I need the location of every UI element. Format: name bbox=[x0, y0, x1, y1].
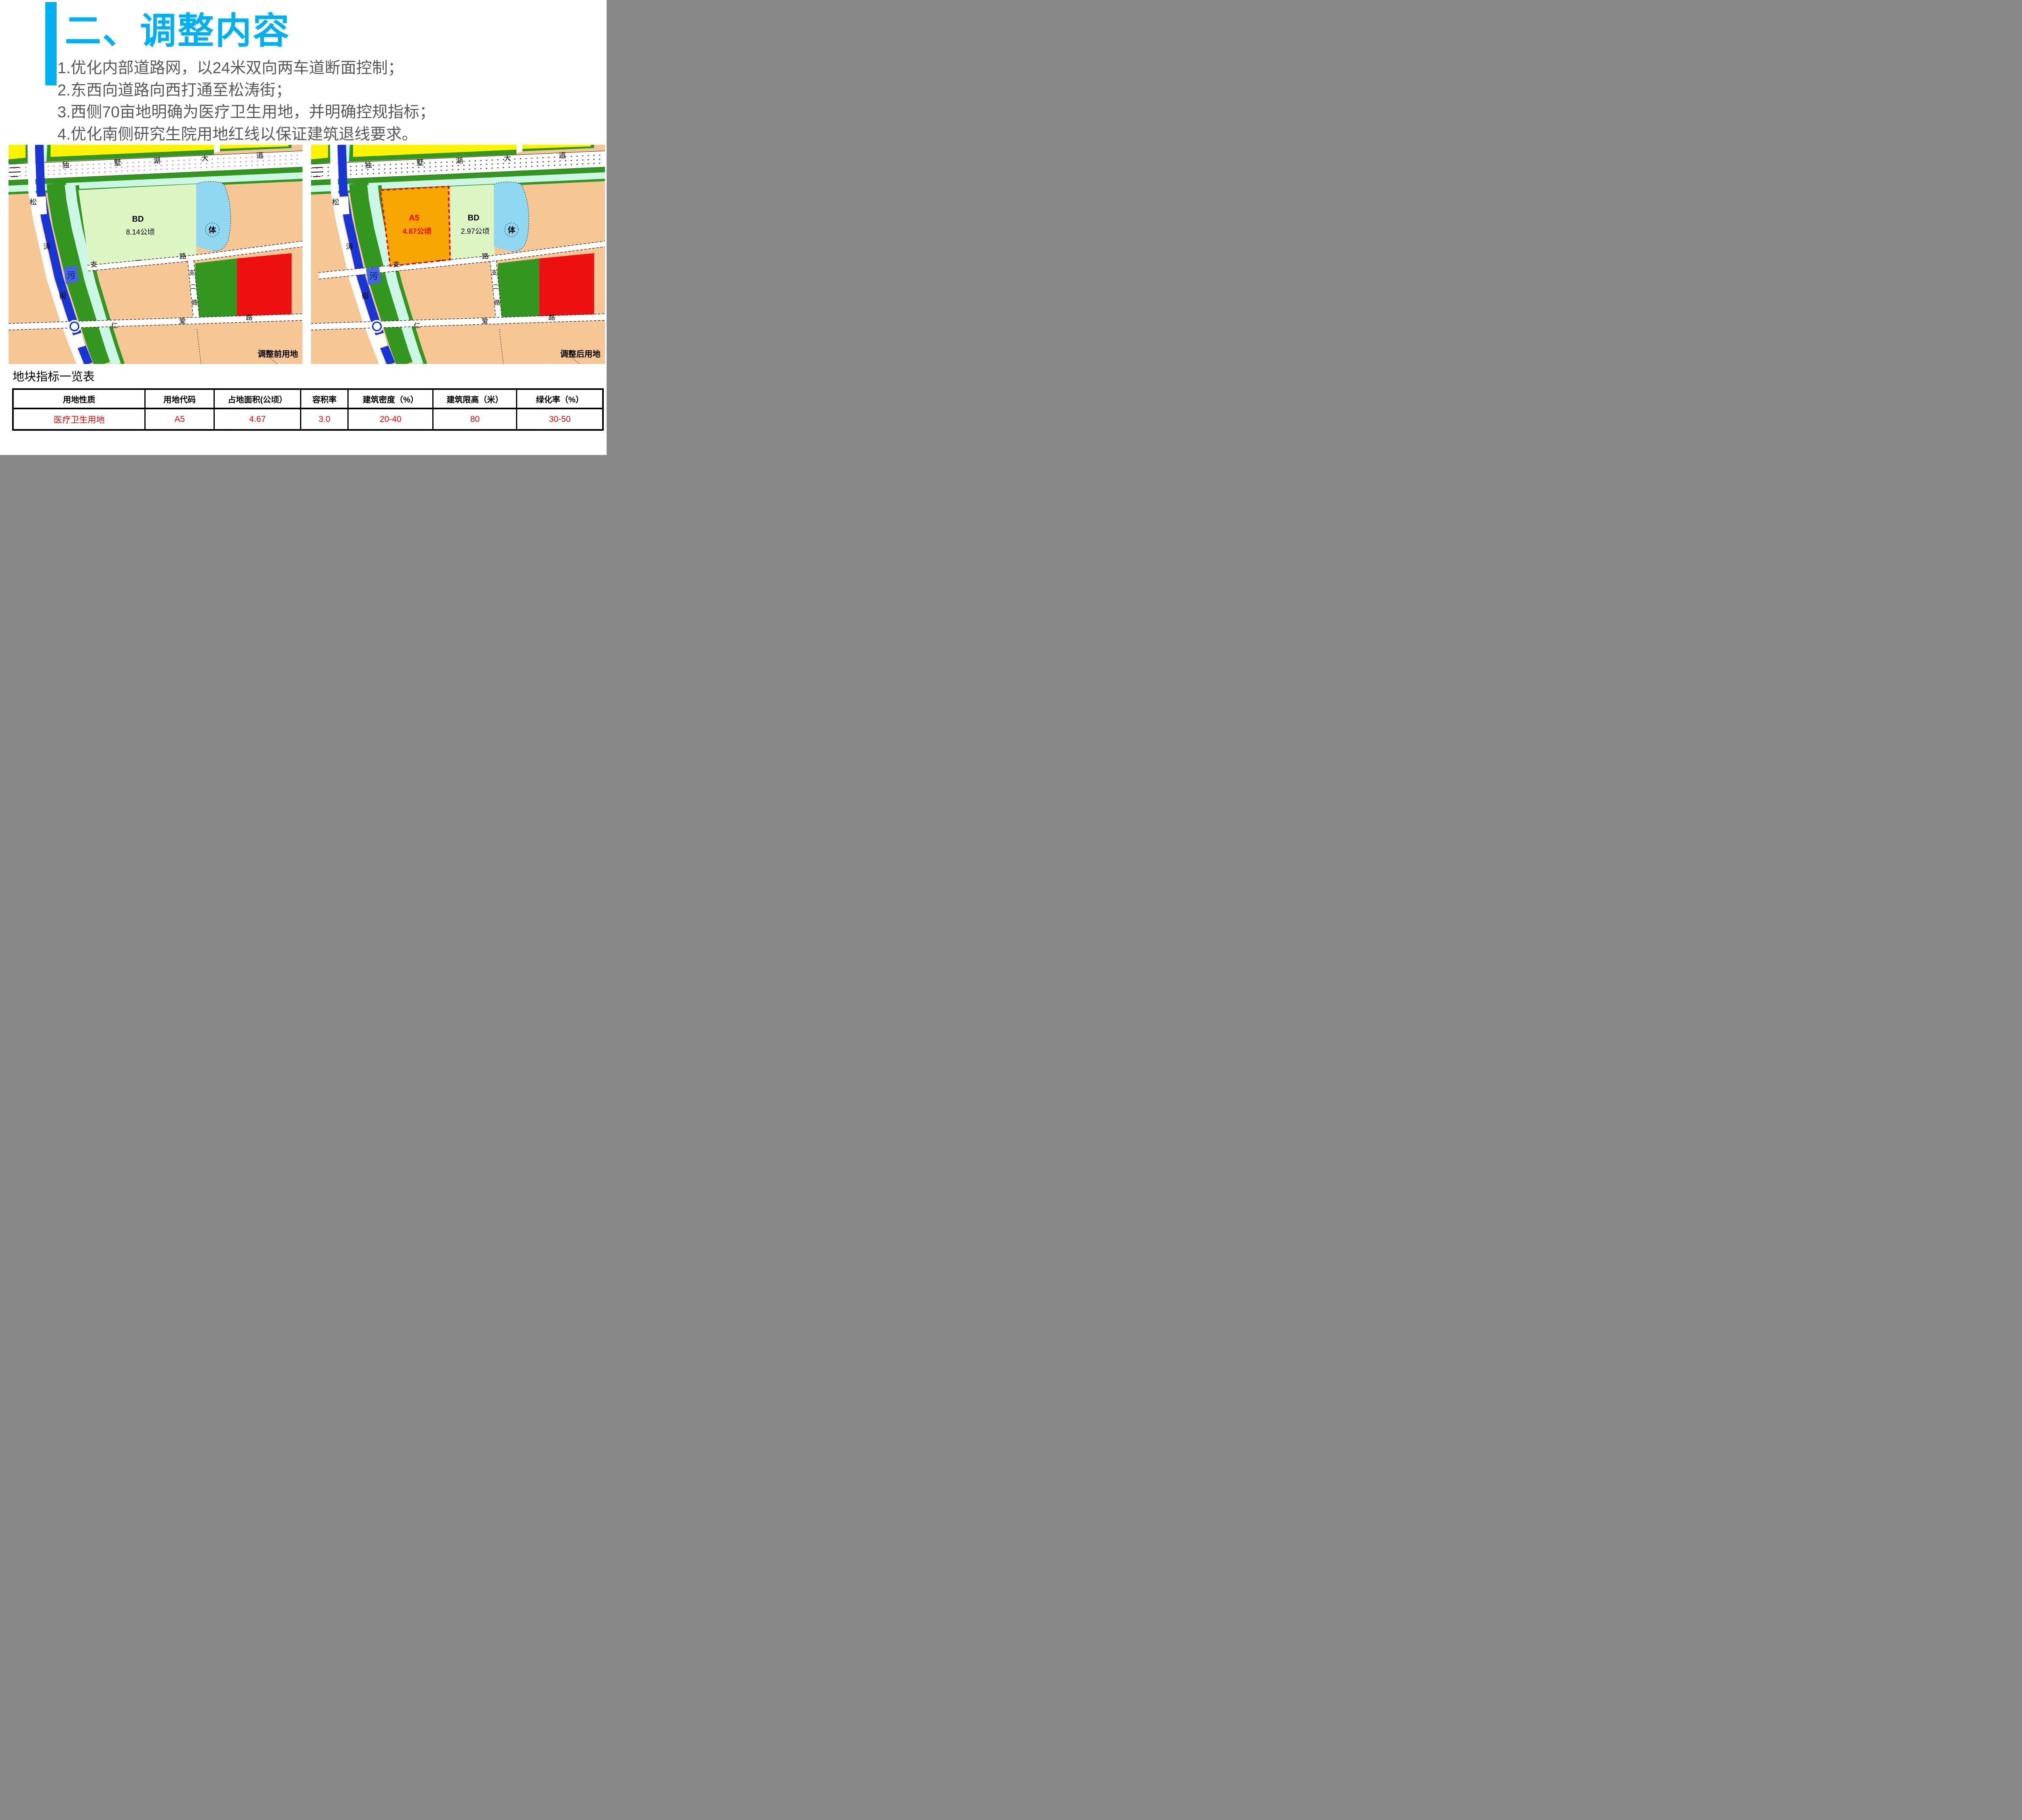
col-header-green-ratio: 绿化率（%） bbox=[517, 389, 603, 408]
pond-label: 体 bbox=[508, 225, 516, 235]
pond bbox=[494, 182, 529, 252]
road-label-renai: 仁 bbox=[413, 322, 421, 330]
table-header-row: 用地性质 用地代码 占地面积(公顷） 容积率 建筑密度（%） 建筑限高（米） 绿… bbox=[13, 389, 603, 408]
cell-far: 3.0 bbox=[301, 408, 348, 430]
parcel-label-bd-code: BD bbox=[132, 215, 144, 224]
pond bbox=[196, 182, 231, 251]
road-label-songtao: 街 bbox=[362, 292, 369, 300]
road-label-zhiyi: 一 bbox=[135, 257, 142, 265]
pond-label: 体 bbox=[208, 225, 216, 235]
parcel-park bbox=[195, 258, 237, 318]
title-accent-bar bbox=[45, 2, 57, 85]
sewage-label: 污 bbox=[67, 271, 76, 280]
road-label-renai: 爱 bbox=[481, 317, 489, 325]
road-label-renai: 仁 bbox=[111, 322, 118, 330]
road-label-dushuhu: 独 bbox=[62, 161, 70, 169]
col-header-density: 建筑密度（%） bbox=[348, 389, 433, 408]
bullet-list: 1.优化内部道路网，以24米双向两车道断面控制； 2.东西向道路向西打通至松涛街… bbox=[57, 57, 599, 146]
bullet-item: 2.东西向道路向西打通至松涛街； bbox=[57, 80, 599, 102]
map-caption-after: 调整后用地 bbox=[560, 349, 601, 359]
table-row: 医疗卫生用地 A5 4.67 3.0 20-40 80 30-50 bbox=[13, 408, 603, 430]
parcel-label-bd-area: 2.97公顷 bbox=[461, 227, 489, 235]
bullet-item: 3.西侧70亩地明确为医疗卫生用地，并明确控规指标； bbox=[57, 102, 599, 124]
page-title: 二、调整内容 bbox=[65, 11, 290, 51]
col-header-far: 容积率 bbox=[301, 389, 348, 408]
parcel-label-bd-code: BD bbox=[468, 214, 480, 222]
map-caption-before: 调整前用地 bbox=[258, 349, 298, 359]
road-label-renai: 路 bbox=[245, 313, 253, 322]
parcel-red bbox=[539, 253, 594, 317]
bullet-item: 4.优化南侧研究生院用地红线以保证建筑退线要求。 bbox=[57, 124, 599, 146]
cell-green-ratio: 30-50 bbox=[517, 408, 603, 430]
road-label-songtao: 街 bbox=[59, 292, 66, 300]
col-header-land-use: 用地性质 bbox=[13, 389, 145, 408]
cell-area: 4.67 bbox=[214, 408, 301, 430]
road-label-songtao: 松 bbox=[332, 198, 339, 206]
road-label-dushuhu: 墅 bbox=[416, 159, 424, 167]
road-label-zhier: 路 bbox=[494, 299, 500, 306]
col-header-area: 占地面积(公顷） bbox=[214, 389, 301, 408]
road-label-songtao: 涛 bbox=[346, 243, 353, 251]
cell-land-use: 医疗卫生用地 bbox=[13, 408, 145, 430]
parcel-red bbox=[237, 253, 292, 317]
parcel-yellow bbox=[311, 145, 328, 159]
road-label-dushuhu: 大 bbox=[503, 154, 511, 163]
parcel-label-a5-code: A5 bbox=[409, 214, 419, 222]
col-header-land-code: 用地代码 bbox=[145, 389, 214, 408]
road-label-zhiyi: 一 bbox=[437, 257, 444, 265]
road-label-zhier: 二 bbox=[190, 284, 196, 290]
parcel-bd bbox=[78, 184, 196, 265]
parcel-a5 bbox=[381, 186, 450, 266]
cell-density: 20-40 bbox=[348, 408, 433, 430]
parcel-label-bd-area: 8.14公顷 bbox=[126, 228, 154, 236]
sewage-label: 污 bbox=[370, 272, 378, 281]
road-label-dushuhu: 墅 bbox=[114, 159, 121, 167]
map-before-land-use: 独 墅 湖 大 道 松 涛 街 支 一 路 支 二 路 仁 爱 路 BD 8.1… bbox=[8, 145, 302, 364]
road-label-dushuhu: 大 bbox=[201, 154, 209, 163]
road-label-zhiyi: 路 bbox=[179, 252, 186, 260]
road-label-zhier: 二 bbox=[493, 284, 499, 290]
cell-height-limit: 80 bbox=[433, 408, 517, 430]
road-label-dushuhu: 道 bbox=[558, 151, 566, 160]
road-label-dushuhu: 湖 bbox=[455, 157, 463, 165]
road-label-songtao: 涛 bbox=[43, 243, 51, 251]
parcel-park bbox=[497, 258, 539, 318]
road-label-zhier: 支 bbox=[189, 269, 195, 276]
road-label-dushuhu: 独 bbox=[364, 161, 372, 169]
road-label-zhiyi: 路 bbox=[482, 252, 489, 260]
parcel-yellow bbox=[8, 145, 25, 159]
road-label-songtao: 松 bbox=[30, 198, 37, 206]
bullet-item: 1.优化内部道路网，以24米双向两车道断面控制； bbox=[57, 57, 599, 80]
parcel-label-a5-area: 4.67公顷 bbox=[402, 227, 431, 235]
slide: 二、调整内容 1.优化内部道路网，以24米双向两车道断面控制； 2.东西向道路向… bbox=[0, 0, 607, 455]
road-label-renai: 路 bbox=[548, 313, 555, 322]
road-label-zhier: 支 bbox=[491, 269, 497, 276]
road-label-renai: 爱 bbox=[179, 317, 186, 325]
road-label-zhiyi: 支 bbox=[393, 260, 400, 269]
indicator-table: 用地性质 用地代码 占地面积(公顷） 容积率 建筑密度（%） 建筑限高（米） 绿… bbox=[12, 388, 604, 431]
col-header-height-limit: 建筑限高（米） bbox=[433, 389, 517, 408]
road-label-dushuhu: 湖 bbox=[153, 157, 161, 165]
table-title: 地块指标一览表 bbox=[13, 367, 95, 384]
map-after-land-use: 独 墅 湖 大 道 松 涛 街 支 一 路 支 二 路 仁 爱 路 A5 4.6… bbox=[311, 145, 605, 364]
road-label-dushuhu: 道 bbox=[256, 151, 264, 160]
road-label-zhiyi: 支 bbox=[90, 260, 97, 269]
road-label-zhier: 路 bbox=[192, 299, 198, 306]
cell-land-code: A5 bbox=[145, 408, 214, 430]
